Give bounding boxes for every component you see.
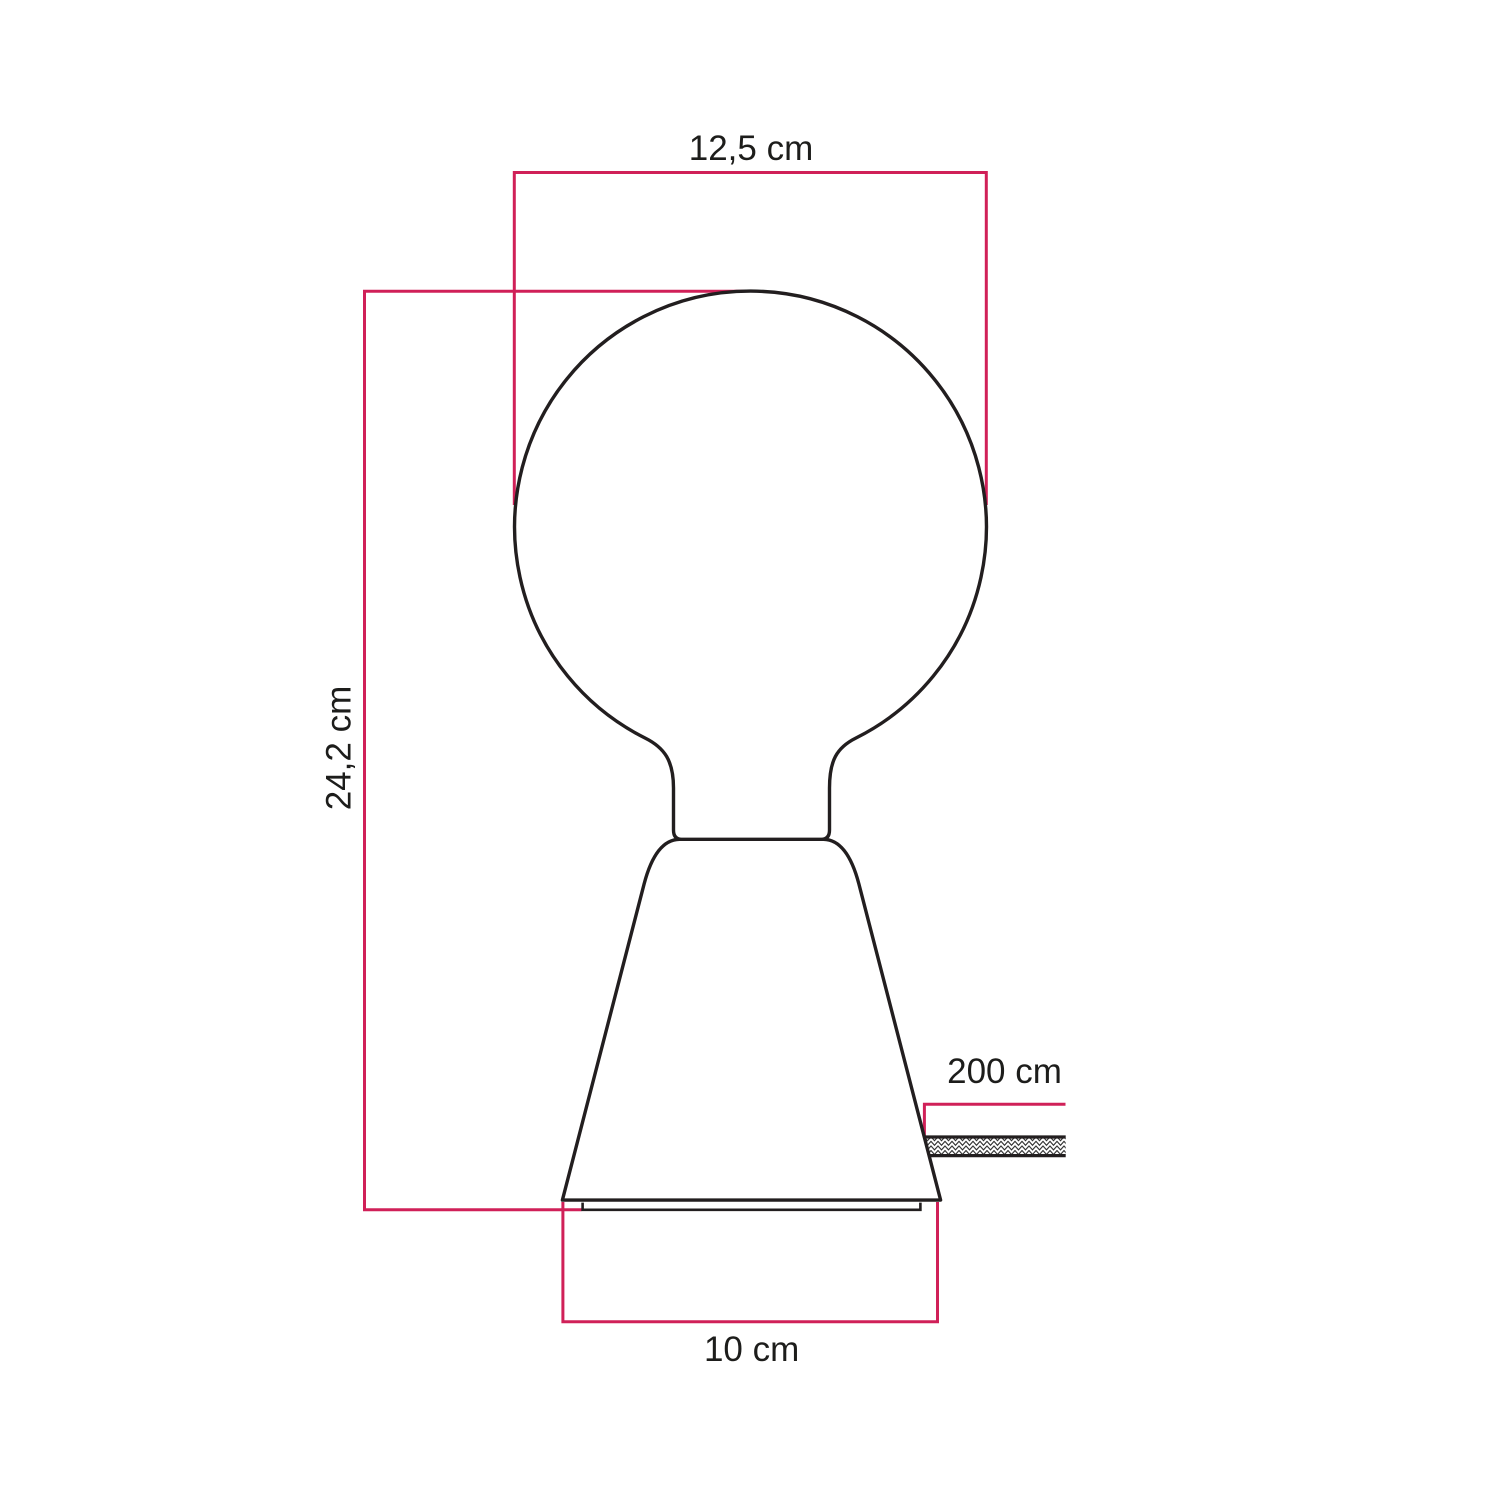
svg-text:200 cm: 200 cm [947,1052,1062,1091]
svg-text:10 cm: 10 cm [704,1330,799,1369]
svg-text:24,2 cm: 24,2 cm [320,686,359,811]
svg-text:12,5 cm: 12,5 cm [689,129,814,168]
